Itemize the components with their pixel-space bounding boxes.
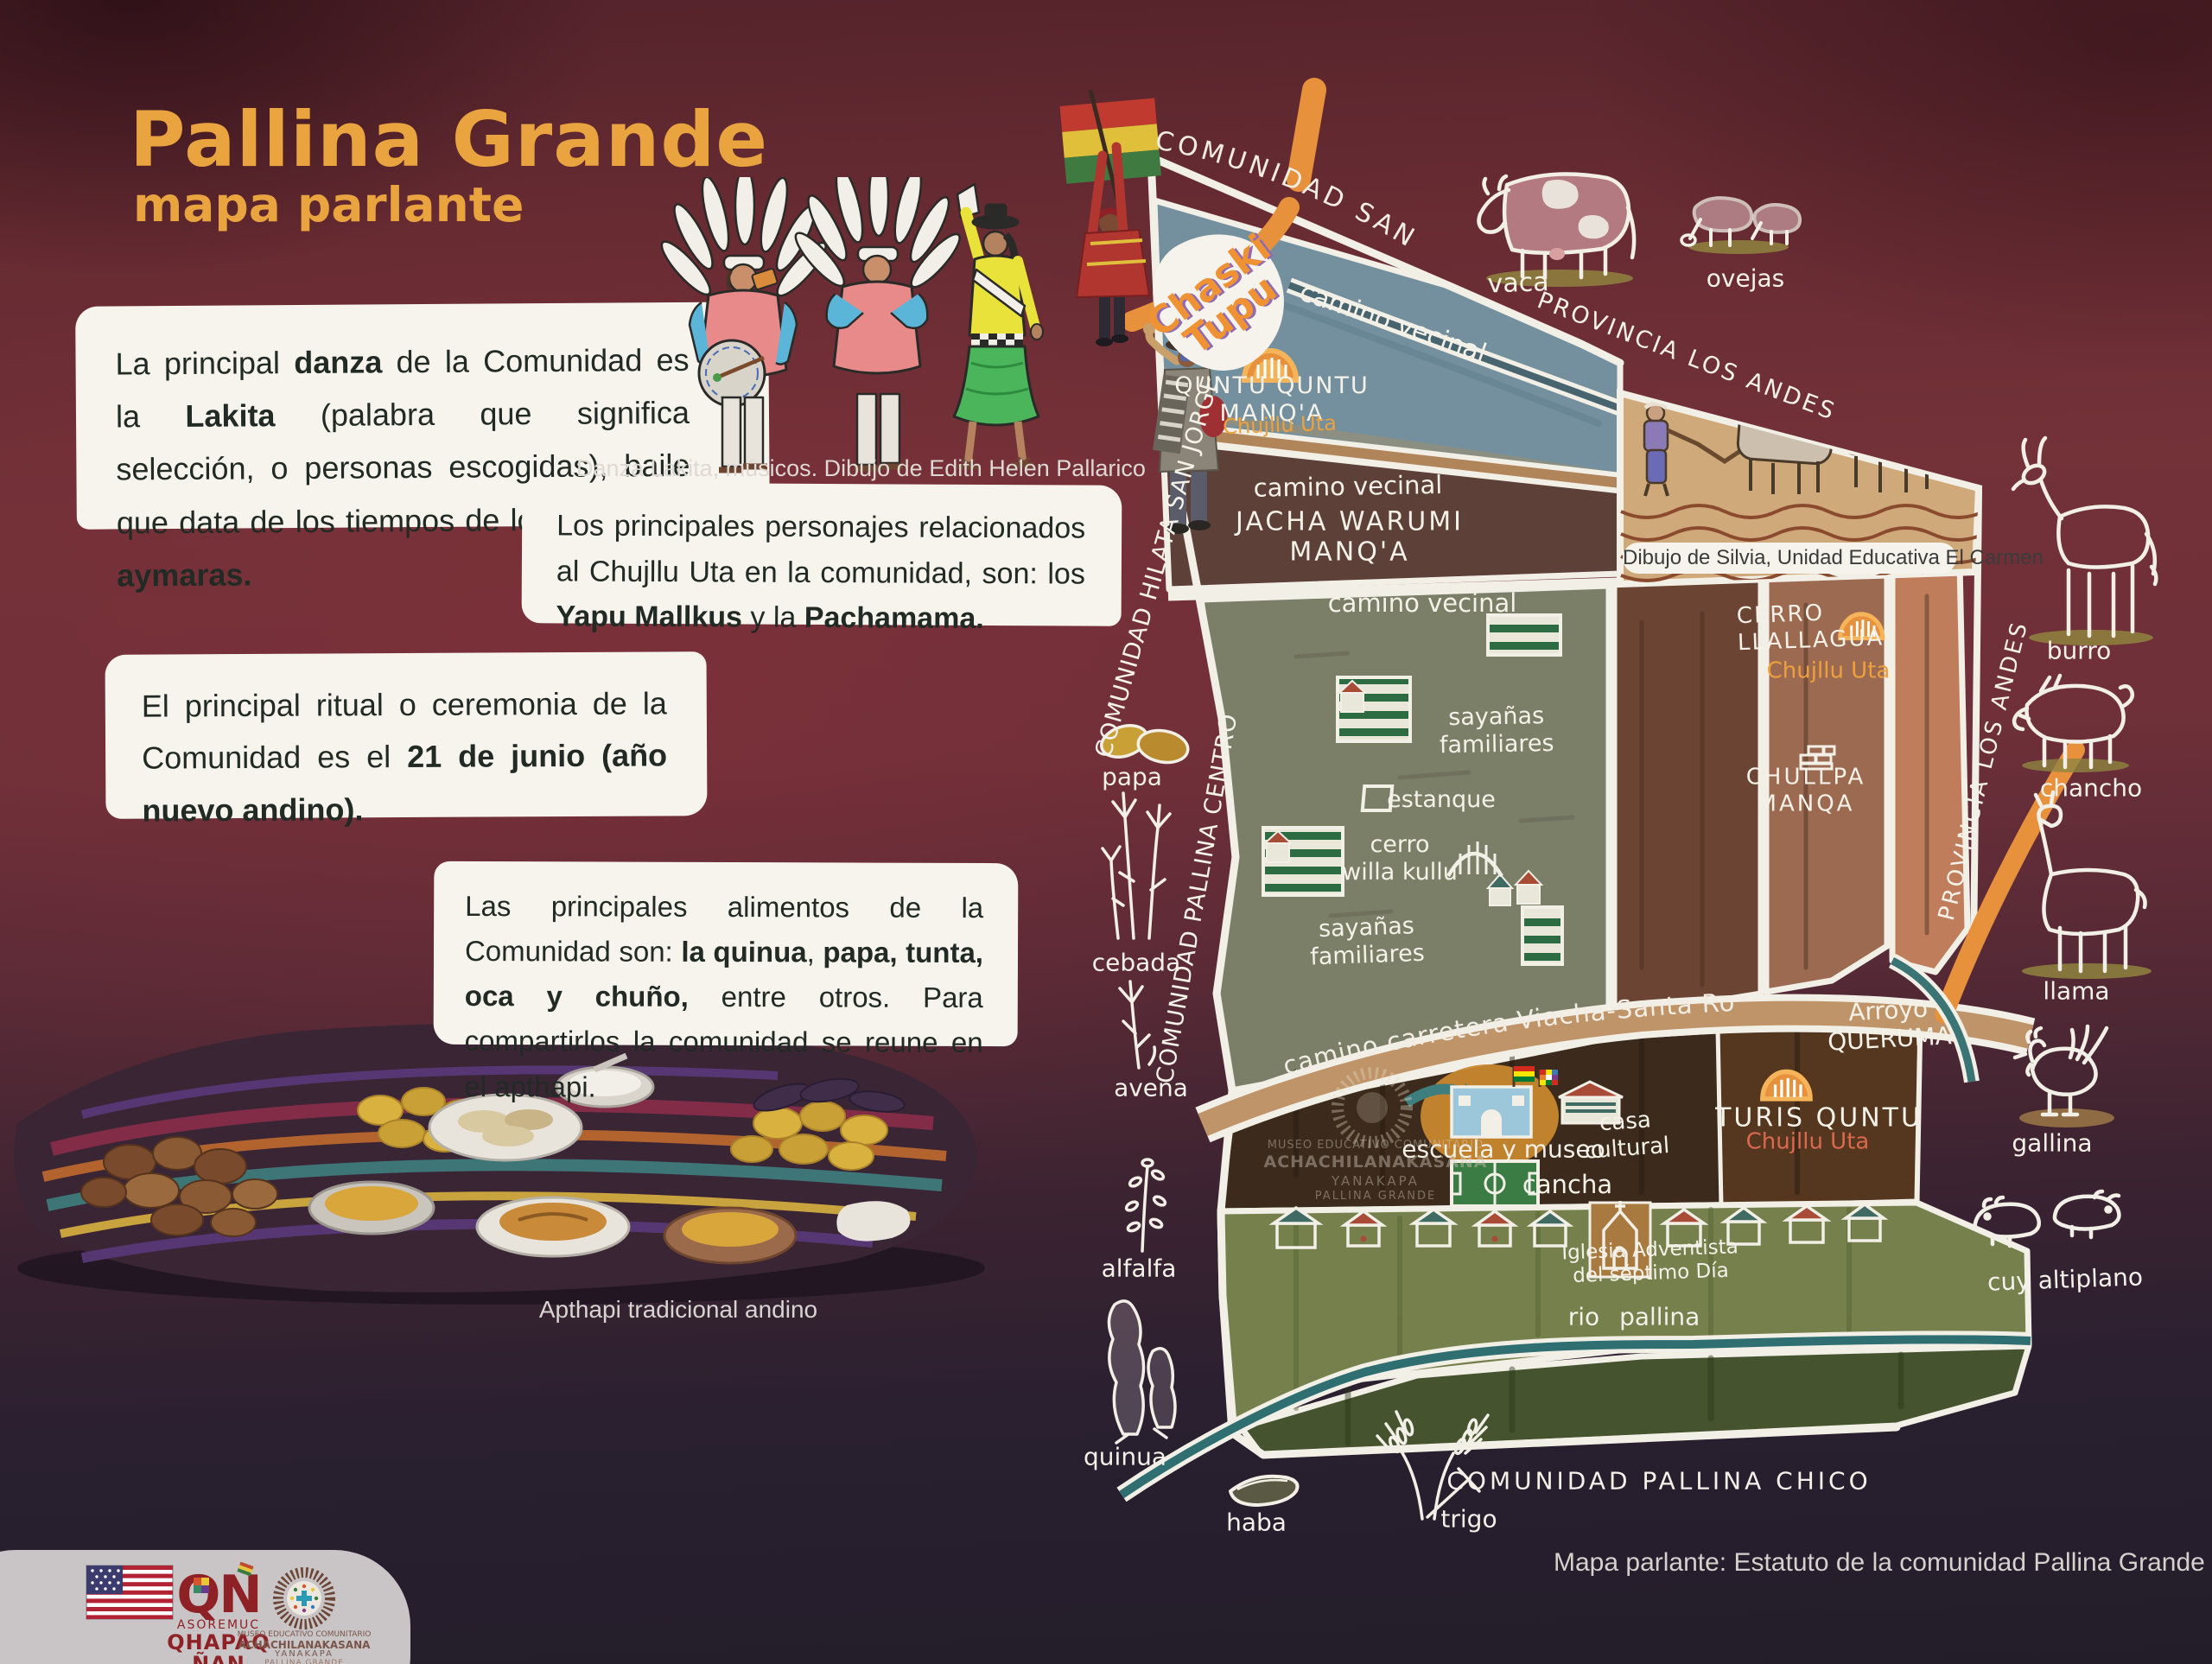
cuy-drawing bbox=[1975, 1191, 2120, 1246]
title-main: Pallina Grande bbox=[130, 102, 768, 178]
map-label-jacha-warumi: JACHA WARUMIMANQ'A bbox=[1236, 507, 1464, 568]
map-label-cebada: cebada bbox=[1092, 948, 1180, 976]
dancer-woman bbox=[954, 184, 1043, 468]
map-label-rio-pallina: rio pallina bbox=[1568, 1302, 1700, 1331]
map-label-chujllu-uta-2: Chujllu Uta bbox=[1767, 658, 1891, 685]
map-label-chujllu-uta-3: Chujllu Uta bbox=[1746, 1129, 1870, 1156]
map-label-trigo: trigo bbox=[1440, 1504, 1497, 1533]
map-label-llama: llama bbox=[2043, 976, 2109, 1005]
danza-caption: Danza Lakita, músicos. Dibujo de Edith H… bbox=[576, 455, 1146, 482]
map-label-gallina: gallina bbox=[2012, 1128, 2092, 1157]
us-flag-icon bbox=[86, 1566, 173, 1619]
museo-comunitario-label: MUSEO EDUCATIVO COMUNITARIO ACHACHILANAK… bbox=[238, 1631, 372, 1664]
llama-drawing bbox=[2022, 792, 2152, 979]
map-label-cerro-willa-kullu: cerrowilla kullu bbox=[1342, 831, 1458, 886]
dancers-illustration bbox=[639, 177, 1071, 488]
haba-drawing bbox=[1230, 1477, 1298, 1505]
map-label-cancha: cancha bbox=[1522, 1170, 1612, 1199]
hen-drawing bbox=[2015, 1026, 2114, 1127]
alfalfa-drawing bbox=[1125, 1159, 1166, 1251]
map-label-papa: papa bbox=[1102, 762, 1162, 791]
text-block-alimentos: Las principales alimentos de la Comunida… bbox=[434, 861, 1019, 1046]
map-label-haba: haba bbox=[1226, 1508, 1287, 1536]
sheep-drawing bbox=[1681, 198, 1800, 254]
cebada-drawing bbox=[1103, 793, 1170, 938]
map-label-estanque: estanque bbox=[1387, 786, 1496, 814]
map-label-alfalfa: alfalfa bbox=[1102, 1254, 1177, 1282]
map-label-camino-vecinal-3: camino vecinal bbox=[1328, 588, 1517, 618]
map-label-cuy-altiplano: cuy altiplano bbox=[1987, 1262, 2144, 1296]
map-label-pallina-chico: COMUNIDAD PALLINA CHICO bbox=[1446, 1466, 1871, 1495]
map-label-chancho: chancho bbox=[2040, 773, 2142, 802]
text-block-personajes: Los principales personajes relacionados … bbox=[522, 482, 1122, 626]
text-block-ritual: El principal ritual o ceremonia de la Co… bbox=[105, 651, 708, 819]
map-source-caption: Mapa parlante: Estatuto de la comunidad … bbox=[1554, 1548, 2205, 1578]
map-label-quinua: quinua bbox=[1084, 1442, 1166, 1470]
map-label-sayanas-1: sayañasfamiliares bbox=[1439, 702, 1554, 759]
map-label-camino-vecinal-2: camino vecinal bbox=[1253, 470, 1442, 503]
poster: COMUNIDAD SANTA ROSA camino carretera Vi… bbox=[0, 0, 2212, 1664]
lakita-musician-1 bbox=[656, 177, 832, 470]
map-label-cerro-llallagua: CERROLLALLAGUA bbox=[1736, 598, 1884, 656]
map-label-iglesia-adventista: Iglesia Adventistadel séptimo Día bbox=[1561, 1235, 1739, 1288]
map-label-chujllu-uta-1: Chujllu Uta bbox=[1223, 411, 1338, 440]
museum-watermark-text: MUSEO EDUCATIVO COMUNITARIO ACHACHILANAK… bbox=[1263, 1139, 1487, 1204]
apthapi-caption: Apthapi tradicional andino bbox=[539, 1296, 817, 1324]
map-label-chullpa-manqa: CHULLPAMANQA bbox=[1746, 764, 1866, 816]
avena-drawing bbox=[1120, 981, 1154, 1068]
dibujo-silvia-caption: Dibujo de Silvia, Unidad Educativa El Ca… bbox=[1623, 543, 1956, 574]
map-label-sayanas-2: sayañasfamiliares bbox=[1309, 912, 1426, 971]
qhapaq-nan-logo: QN bbox=[176, 1562, 260, 1625]
quinua-drawing bbox=[1109, 1301, 1175, 1443]
map-label-ovejas: ovejas bbox=[1707, 264, 1784, 292]
map-label-burro: burro bbox=[2047, 636, 2112, 664]
map-label-casa-cultural: casacultural bbox=[1582, 1106, 1671, 1165]
map-label-arroyo-queruma: ArroyoQUERUMA bbox=[1826, 993, 1953, 1056]
burro-drawing bbox=[2013, 438, 2156, 645]
lakita-musician-2 bbox=[790, 177, 966, 468]
